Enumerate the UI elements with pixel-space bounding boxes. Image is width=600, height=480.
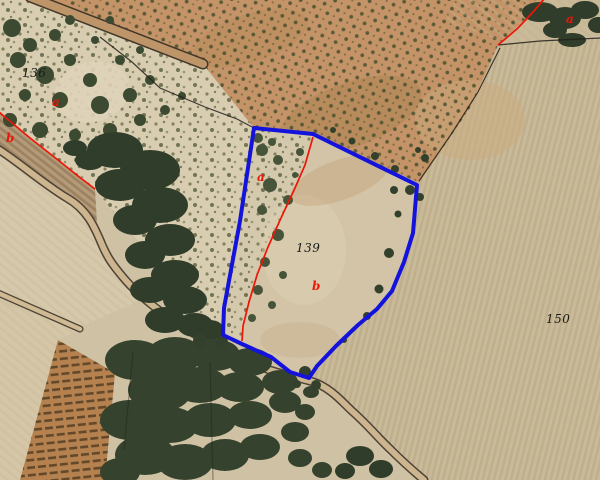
map-viewport[interactable]: 136139150ababa	[0, 0, 600, 480]
aerial-photo-canvas[interactable]	[0, 0, 600, 480]
